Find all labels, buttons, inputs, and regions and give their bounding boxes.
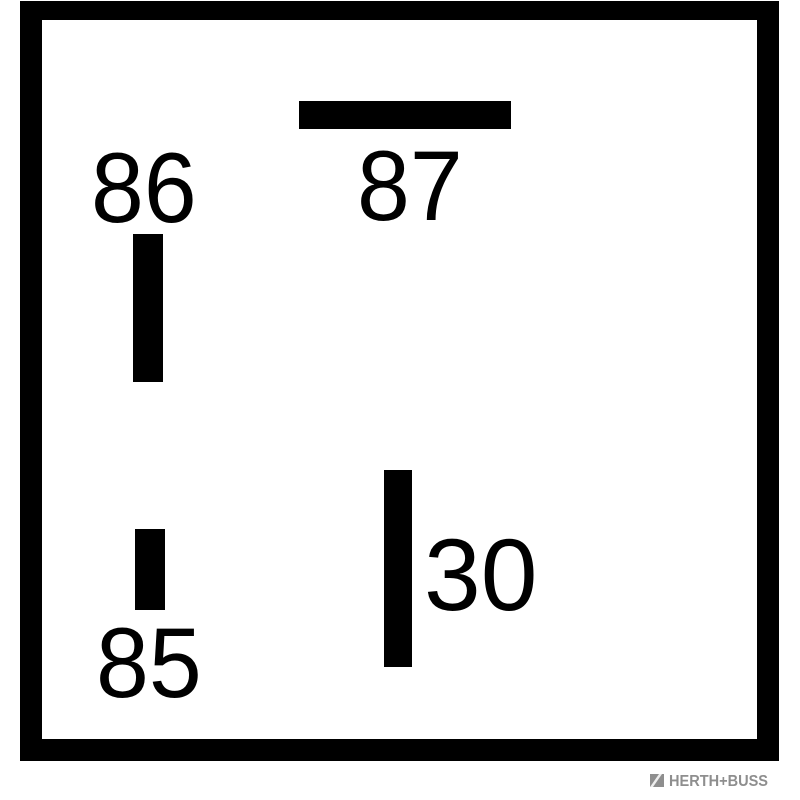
svg-text:HERTH+BUSS: HERTH+BUSS bbox=[669, 773, 768, 790]
